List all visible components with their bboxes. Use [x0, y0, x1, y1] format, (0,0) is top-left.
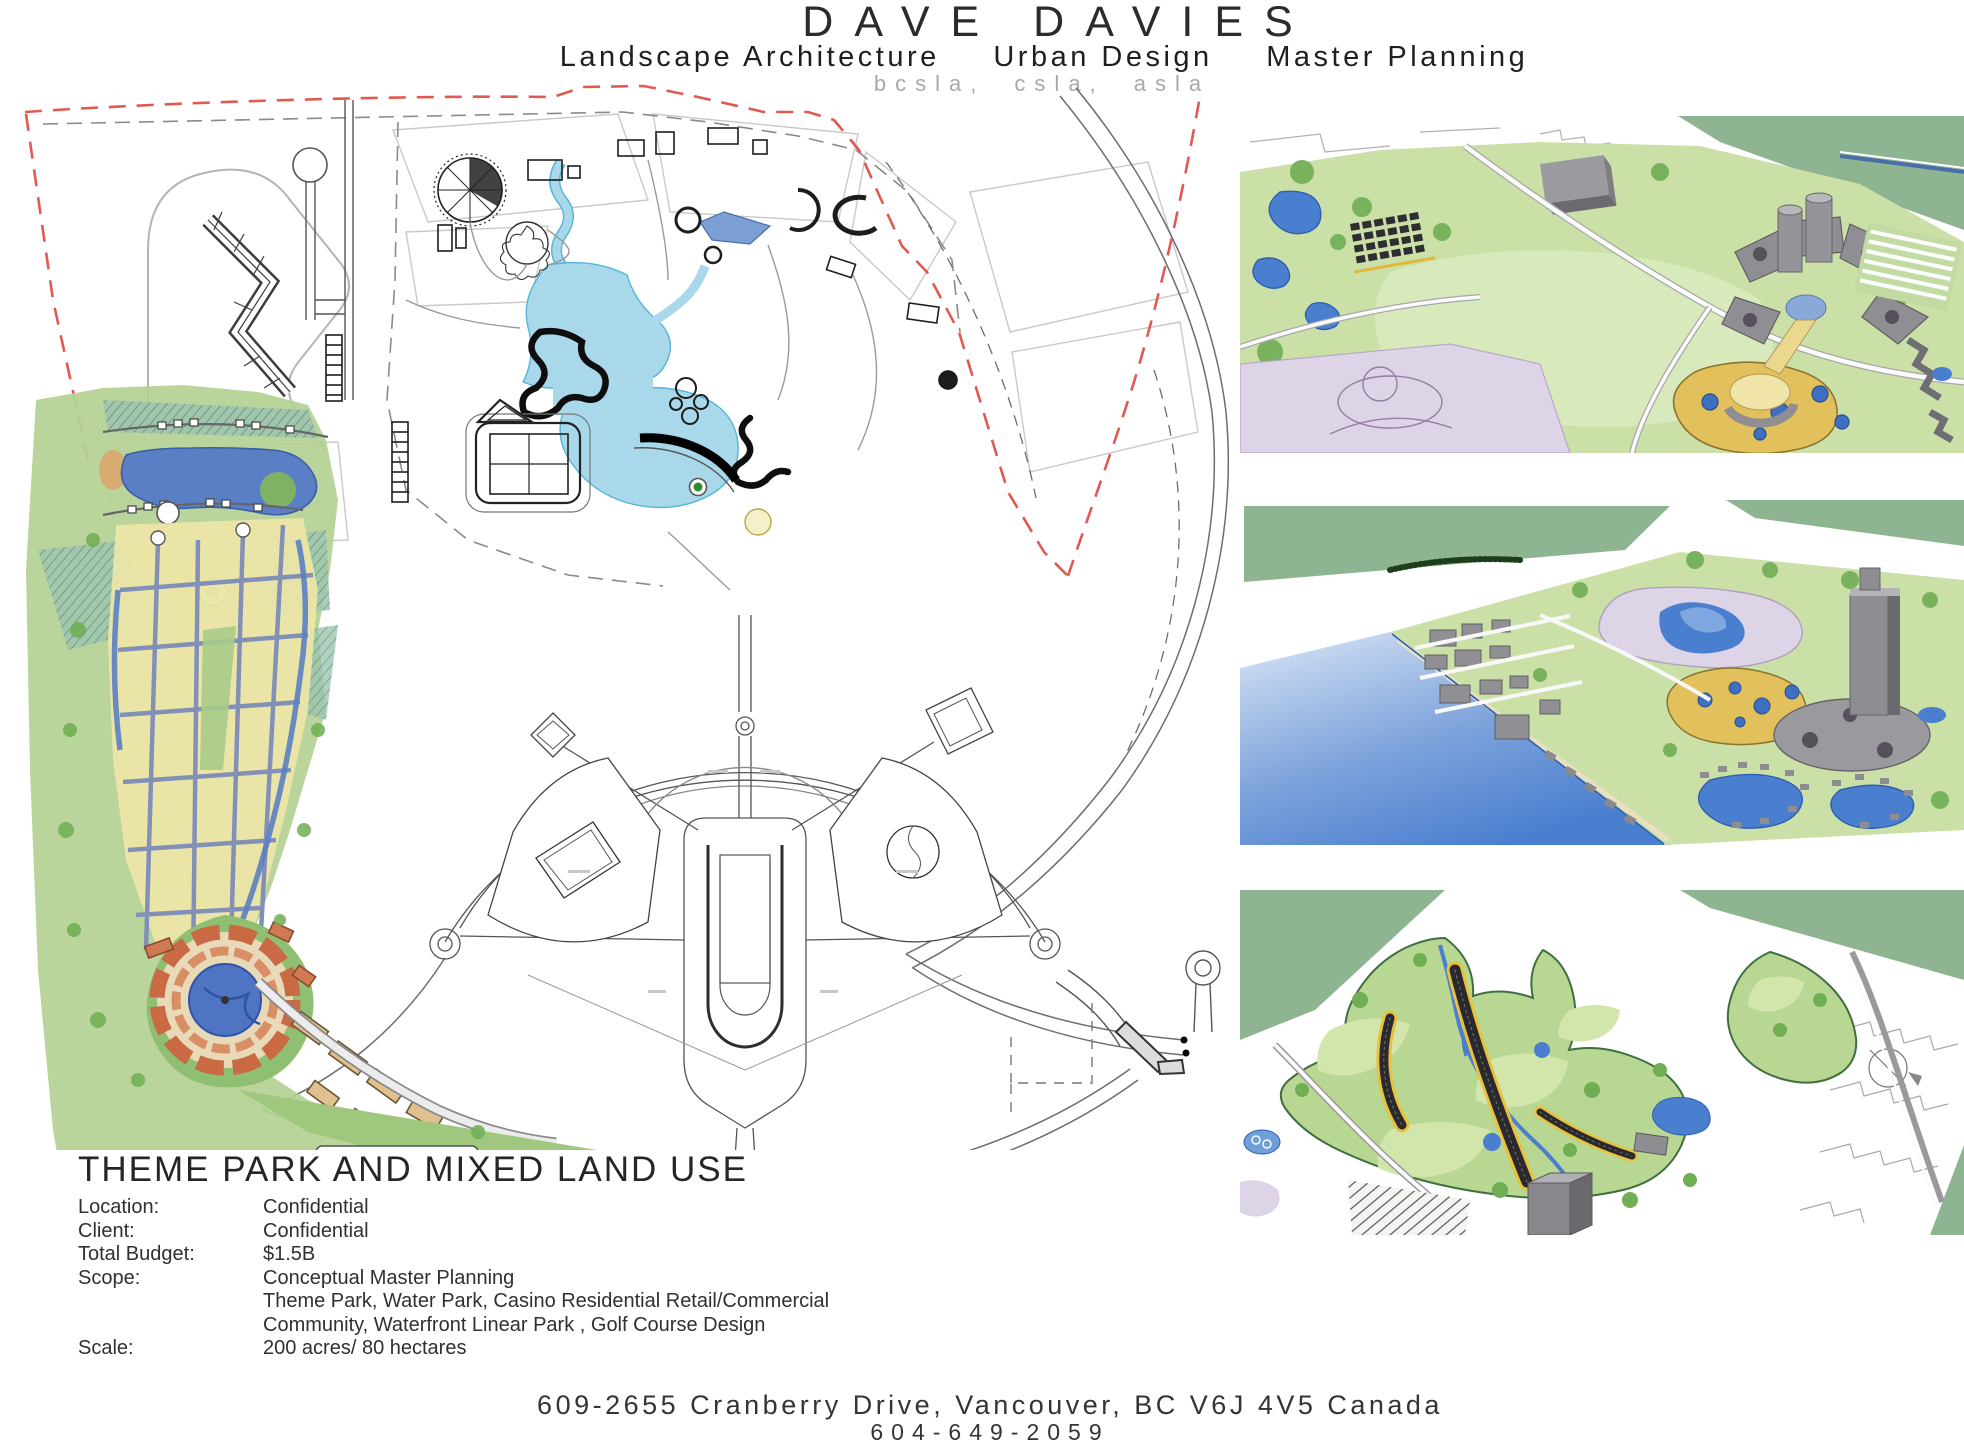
detail-value: $1.5B [263, 1243, 315, 1267]
detail-row-scope: Scope: Conceptual Master Planning [78, 1267, 829, 1291]
clubhouse [1634, 1133, 1668, 1155]
aerial-render-waterfront [1240, 500, 1964, 845]
detail-row-budget: Total Budget: $1.5B [78, 1243, 829, 1267]
aerial-render-golf-course [1240, 890, 1964, 1235]
master-plan-drawing [8, 70, 1238, 1150]
resort-pool [1932, 367, 1952, 381]
tower-pool [1918, 707, 1946, 723]
discipline-master: Master Planning [1266, 41, 1528, 73]
theme-park-plan [326, 128, 957, 590]
detail-label [78, 1314, 263, 1338]
detail-value: Confidential [263, 1196, 369, 1220]
southeast-parcel [1011, 951, 1220, 1118]
detail-label: Scope: [78, 1267, 263, 1291]
detail-row-scope-3: Community, Waterfront Linear Park , Golf… [78, 1314, 829, 1338]
detail-label: Client: [78, 1220, 263, 1244]
lavender-edge [1240, 1180, 1280, 1216]
discipline-landscape: Landscape Architecture [560, 41, 940, 73]
resort-fan-plan [430, 615, 1060, 1150]
green-band-right [1726, 500, 1964, 546]
detail-row-scope-2: Theme Park, Water Park, Casino Residenti… [78, 1290, 829, 1314]
golf-landmass-right [1728, 952, 1856, 1083]
detail-row-location: Location: Confidential [78, 1196, 829, 1220]
detail-label: Location: [78, 1196, 263, 1220]
glass-dome [1786, 295, 1826, 321]
tower-1 [1778, 210, 1802, 272]
office-phone: 604-649-2059 [8, 1420, 1964, 1445]
entry-plaza [1730, 374, 1790, 410]
project-title: THEME PARK AND MIXED LAND USE [78, 1150, 829, 1190]
detail-value: Theme Park, Water Park, Casino Residenti… [263, 1290, 829, 1314]
green-band-right [1680, 890, 1964, 980]
yellow-node [745, 509, 771, 535]
detail-value: 200 acres/ 80 hectares [263, 1337, 466, 1361]
detail-label: Total Budget: [78, 1243, 263, 1267]
office-address: 609-2655 Cranberry Drive, Vancouver, BC … [8, 1390, 1964, 1420]
firm-disciplines: Landscape Architecture Urban Design Mast… [62, 42, 1964, 72]
green-band-left [1244, 506, 1670, 582]
detail-row-client: Client: Confidential [78, 1220, 829, 1244]
detail-label: Scale: [78, 1337, 263, 1361]
project-info: THEME PARK AND MIXED LAND USE Location: … [78, 1150, 829, 1361]
detail-value: Conceptual Master Planning [263, 1267, 514, 1291]
aerial-render-casino-core [1240, 112, 1964, 453]
discipline-urban: Urban Design [993, 41, 1212, 73]
detail-value: Confidential [263, 1220, 369, 1244]
firm-name: DAVE DAVIES [76, 2, 1964, 42]
waterpark-lavender [1240, 344, 1570, 453]
portfolio-sheet: DAVE DAVIES Landscape Architecture Urban… [0, 0, 1964, 1446]
detail-label [78, 1290, 263, 1314]
detail-value: Community, Waterfront Linear Park , Golf… [263, 1314, 765, 1338]
detail-row-scale: Scale: 200 acres/ 80 hectares [78, 1337, 829, 1361]
tower-2 [1806, 198, 1832, 262]
